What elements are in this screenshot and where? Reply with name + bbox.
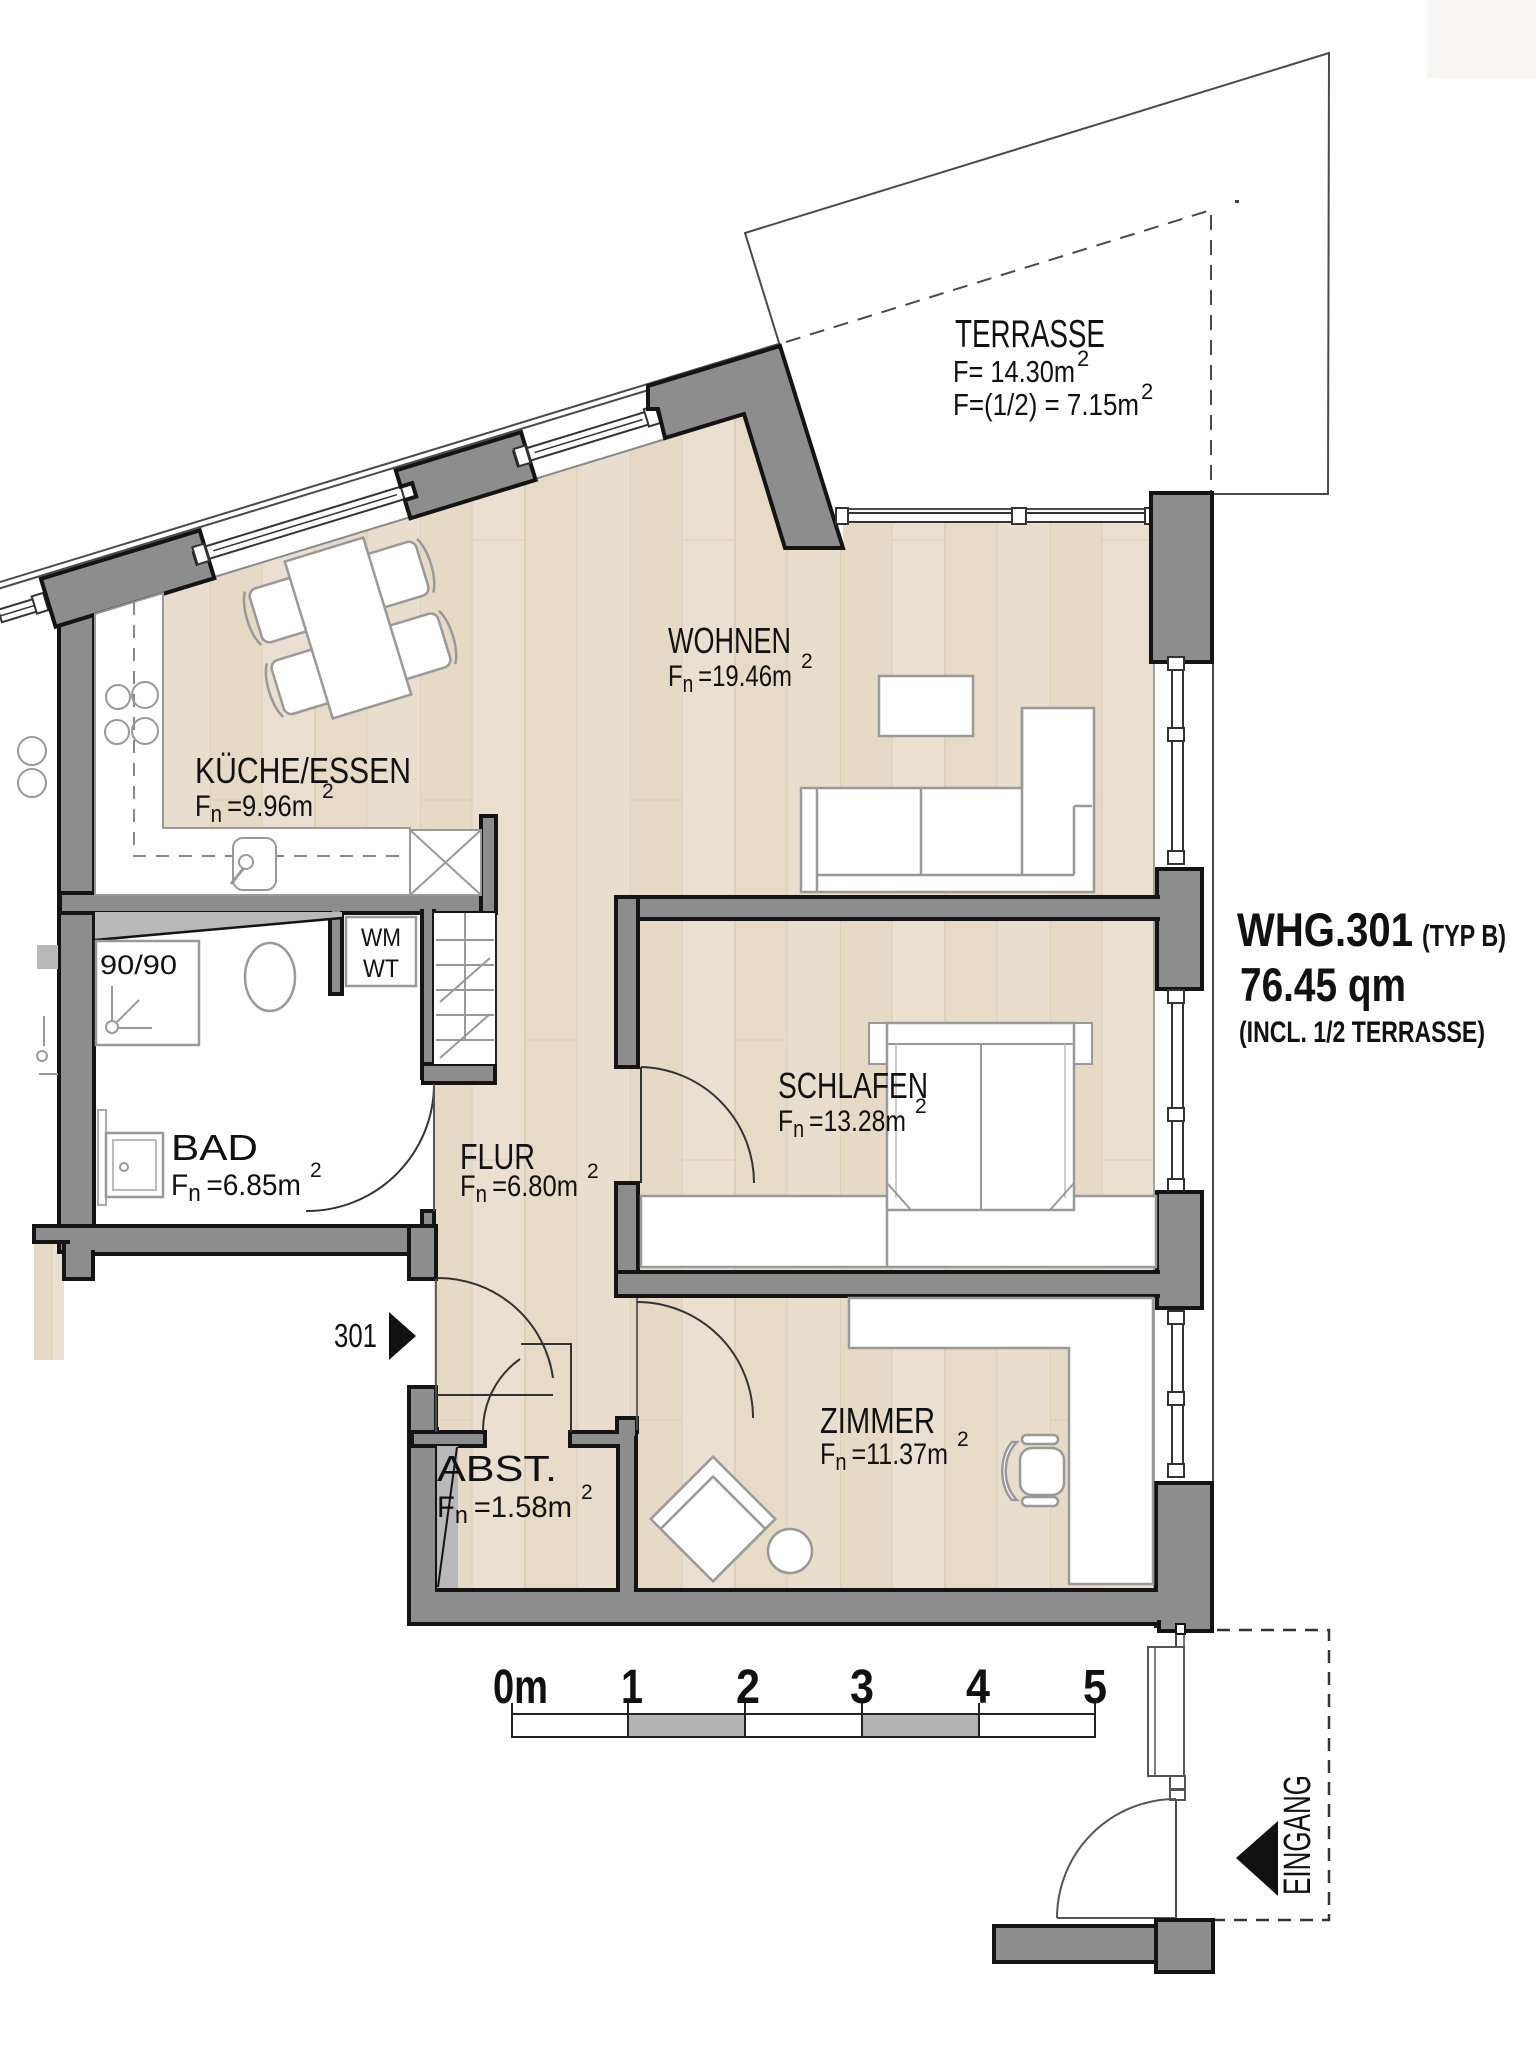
svg-text:(TYP B): (TYP B) <box>1422 918 1506 953</box>
svg-text:F= 14.30m: F= 14.30m <box>953 354 1075 389</box>
svg-text:5: 5 <box>1083 1661 1107 1714</box>
svg-text:2: 2 <box>736 1661 760 1714</box>
svg-text:ZIMMER: ZIMMER <box>820 1400 935 1441</box>
svg-text:1: 1 <box>621 1661 643 1714</box>
svg-text:2: 2 <box>1077 346 1089 371</box>
svg-text:(INCL. 1/2 TERRASSE): (INCL. 1/2 TERRASSE) <box>1239 1016 1485 1049</box>
svg-text:WM: WM <box>361 924 401 952</box>
svg-text:4: 4 <box>966 1661 990 1714</box>
svg-text:WT: WT <box>363 955 399 983</box>
svg-text:KÜCHE/ESSEN: KÜCHE/ESSEN <box>195 750 411 791</box>
svg-text:2: 2 <box>1141 379 1153 404</box>
svg-text:90/90: 90/90 <box>100 950 177 980</box>
svg-text:WOHNEN: WOHNEN <box>668 620 791 661</box>
svg-text:BAD: BAD <box>171 1127 258 1168</box>
svg-text:2: 2 <box>581 1481 593 1504</box>
svg-text:3: 3 <box>850 1661 874 1714</box>
svg-text:F=(1/2) = 7.15m: F=(1/2) = 7.15m <box>953 387 1139 422</box>
svg-text:0m: 0m <box>493 1661 548 1714</box>
svg-text:ABST.: ABST. <box>437 1448 557 1489</box>
svg-text:WHG.301: WHG.301 <box>1237 903 1413 956</box>
svg-text:76.45 qm: 76.45 qm <box>1240 958 1406 1011</box>
svg-text:2: 2 <box>587 1160 599 1183</box>
svg-text:2: 2 <box>915 1095 927 1118</box>
svg-text:SCHLAFEN: SCHLAFEN <box>778 1065 928 1106</box>
svg-text:2: 2 <box>957 1428 969 1451</box>
svg-text:2: 2 <box>322 780 334 803</box>
svg-text:2: 2 <box>310 1159 322 1182</box>
svg-text:2: 2 <box>801 650 813 673</box>
svg-text:EINGANG: EINGANG <box>1277 1775 1319 1895</box>
svg-text:301: 301 <box>334 1317 377 1354</box>
